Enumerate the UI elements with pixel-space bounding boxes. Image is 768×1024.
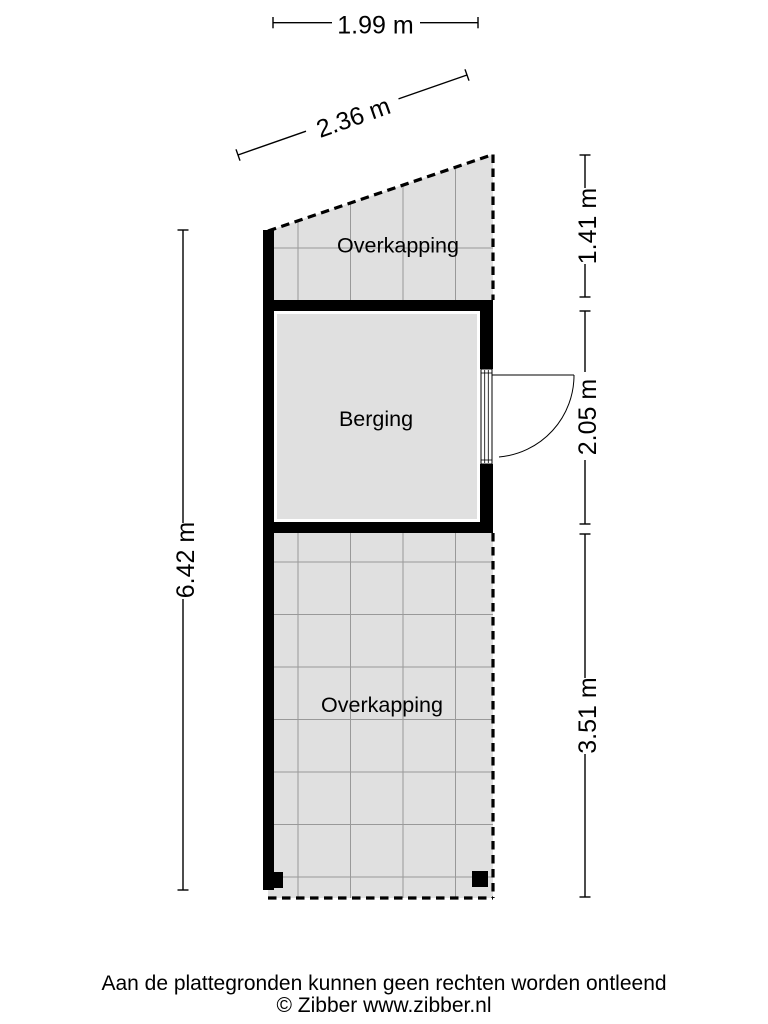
dimension-label-right-top: 1.41 m bbox=[574, 188, 602, 264]
footer-disclaimer: Aan de plattegronden kunnen geen rechten… bbox=[101, 972, 666, 995]
berging-bottom-wall bbox=[263, 522, 493, 533]
room-label-overkapping-bottom: Overkapping bbox=[321, 693, 443, 717]
berging-right-wall-upper bbox=[480, 300, 493, 369]
dimension-top-width: 1.99 m bbox=[273, 12, 478, 40]
dimension-label-right-bottom: 3.51 m bbox=[574, 677, 602, 753]
door-jamb bbox=[481, 369, 492, 464]
room-label-berging: Berging bbox=[339, 407, 413, 431]
dimension-label-right-middle: 2.05 m bbox=[574, 379, 602, 455]
dimension-right-top: 1.41 m bbox=[574, 155, 602, 297]
floorplan-page: 1.99 m 2.36 m 1.41 m 2.05 m 3.51 m bbox=[0, 0, 768, 1024]
door-group bbox=[481, 369, 574, 464]
room-label-overkapping-top: Overkapping bbox=[337, 234, 459, 258]
dimension-right-middle: 2.05 m bbox=[574, 311, 602, 524]
left-wall bbox=[263, 230, 274, 890]
floorplan-canvas: 1.99 m 2.36 m 1.41 m 2.05 m 3.51 m bbox=[0, 0, 768, 1024]
post-bottom-left bbox=[267, 872, 283, 888]
berging-top-wall bbox=[263, 300, 493, 311]
dimension-left-height: 6.42 m bbox=[172, 230, 200, 890]
dimension-label-top-width: 1.99 m bbox=[337, 12, 413, 40]
overkapping-top-area bbox=[268, 155, 493, 301]
dimension-right-bottom: 3.51 m bbox=[574, 534, 602, 897]
dimension-label-left-height: 6.42 m bbox=[172, 522, 200, 598]
post-bottom-right bbox=[472, 871, 488, 887]
door-swing-arc bbox=[499, 375, 574, 457]
dimension-label-slanted-edge: 2.36 m bbox=[313, 92, 394, 144]
footer-copyright: © Zibber www.zibber.nl bbox=[276, 994, 491, 1017]
dimension-slanted-edge: 2.36 m bbox=[236, 69, 469, 160]
berging-right-wall-lower bbox=[480, 464, 493, 533]
